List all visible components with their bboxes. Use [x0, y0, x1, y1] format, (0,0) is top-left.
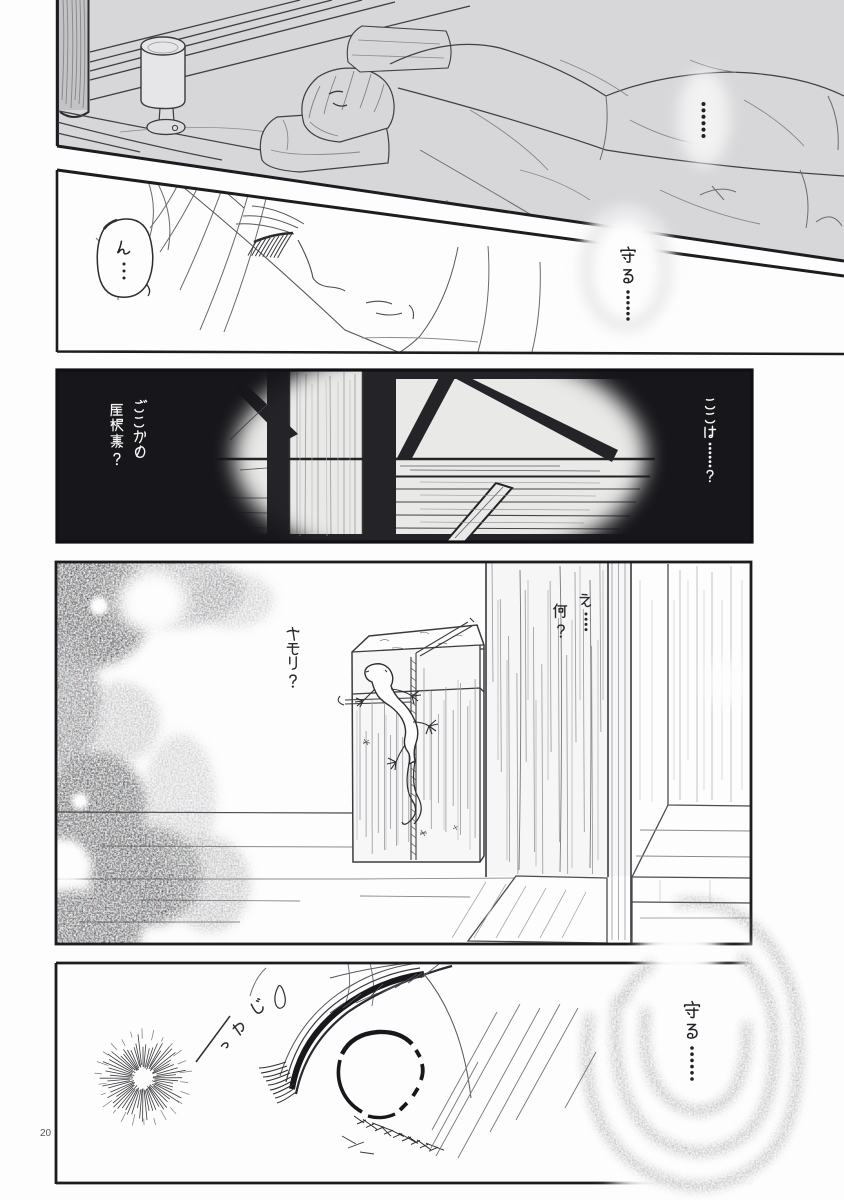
svg-text:20: 20: [40, 1128, 52, 1139]
